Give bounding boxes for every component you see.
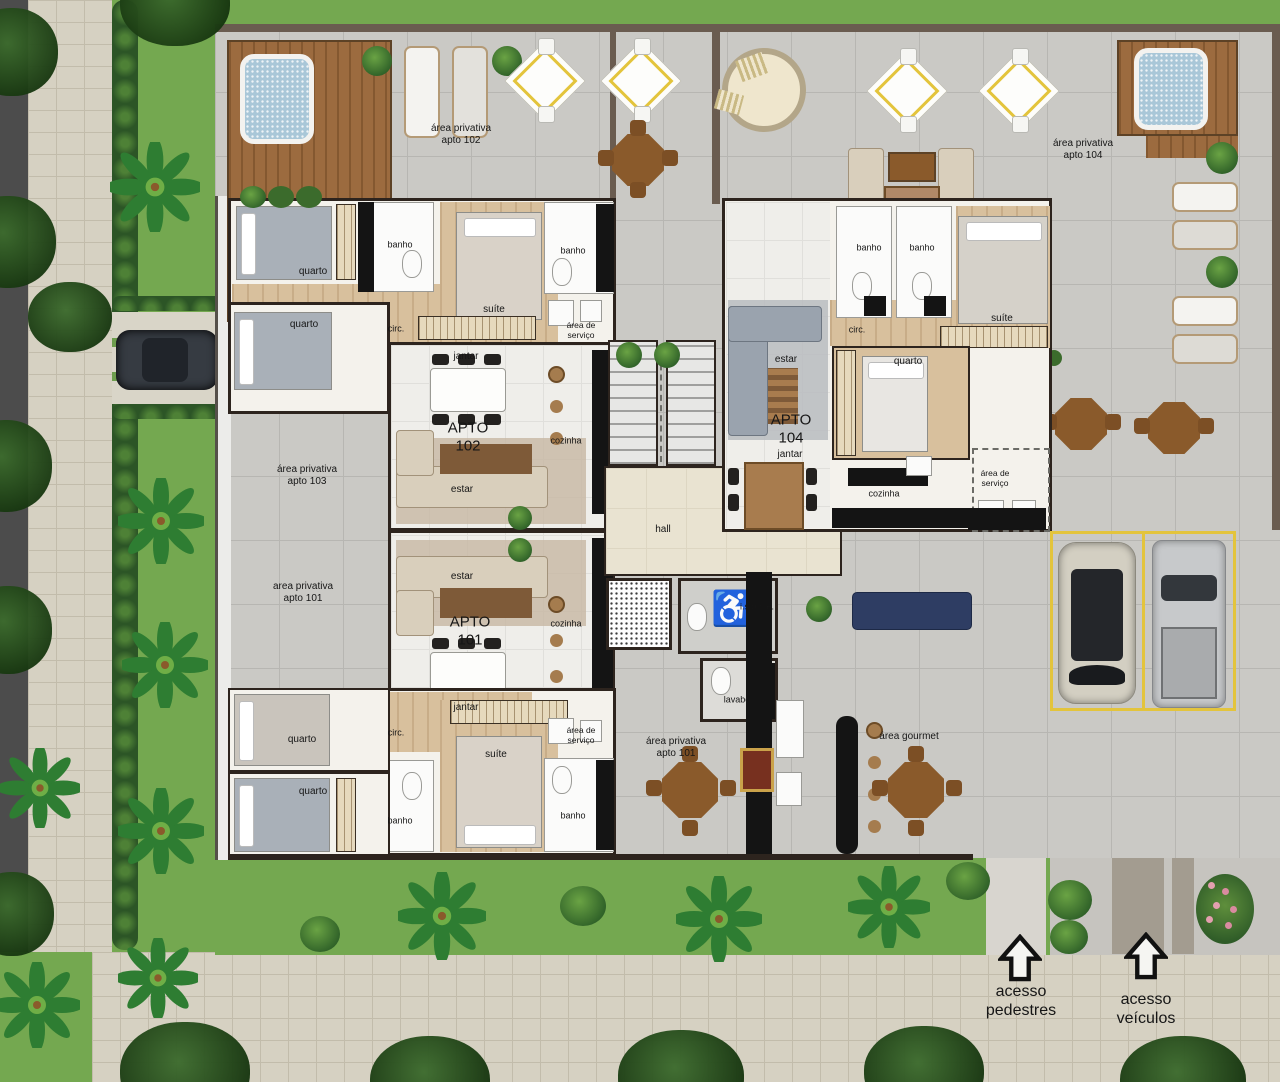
parking-counter — [968, 508, 1046, 530]
gourmet-counter — [746, 572, 772, 854]
garden-bush — [240, 186, 266, 208]
sun-lounger — [1172, 220, 1238, 250]
palm-tree — [118, 938, 198, 1018]
parked-pickup — [1152, 540, 1226, 708]
flower-artwork — [740, 748, 774, 792]
plan-label-area-gourmet: área gourmet — [879, 731, 938, 743]
plan-label-cozinha-101: cozinha — [550, 619, 581, 630]
bed-pillow — [464, 825, 537, 845]
wood-chair — [646, 780, 662, 796]
parked-suv — [1058, 542, 1136, 704]
plan-label-quarto-101b: quarto — [299, 786, 327, 798]
wood-chair — [1134, 418, 1150, 434]
wood-chair — [662, 150, 678, 166]
bath-counter — [924, 296, 946, 316]
closet — [336, 778, 356, 852]
wood-table — [1148, 402, 1200, 454]
terrace-chair — [1012, 48, 1029, 65]
closet — [418, 316, 536, 340]
wood-chair — [872, 780, 888, 796]
plan-label-circ-104: circ. — [849, 325, 866, 336]
bath-counter — [864, 296, 886, 316]
palm-tree — [848, 866, 930, 948]
closet — [836, 350, 856, 456]
tree-canopy — [28, 282, 112, 352]
plan-label-suite-102: suíte — [483, 304, 505, 316]
bed-pillow — [239, 785, 254, 847]
rose-flowers — [1208, 882, 1215, 889]
wall-between-units — [391, 528, 612, 533]
kitchen-stools-102 — [548, 366, 565, 383]
wood-chair — [946, 780, 962, 796]
garden-bush — [560, 886, 606, 926]
terrace-chair — [900, 116, 917, 133]
potted-plant — [1206, 142, 1238, 174]
palm-tree — [0, 962, 80, 1048]
bed-pillow — [464, 218, 537, 237]
plan-label-hall: hall — [655, 524, 671, 536]
bath-counter — [358, 202, 374, 292]
plan-label-apto-102: APTO 102 — [448, 419, 489, 454]
toilet — [552, 766, 572, 794]
garden-bush — [1050, 920, 1088, 954]
gourmet-sofa — [852, 592, 972, 630]
wood-table — [1055, 398, 1107, 450]
dining-chairs — [432, 354, 449, 365]
dining-table-102 — [430, 368, 506, 412]
wood-table — [662, 762, 718, 818]
plan-label-apto-101: APTO 101 — [450, 613, 491, 648]
plan-label-banho-101b: banho — [560, 811, 585, 822]
potted-plant — [508, 506, 532, 530]
elevator — [606, 578, 672, 650]
bath-counter — [596, 760, 614, 850]
plan-label-servico-104: área de serviço — [981, 468, 1010, 488]
plan-label-quarto-102a: quarto — [299, 266, 327, 278]
dining-chairs — [432, 638, 449, 649]
bed-pillow — [966, 222, 1042, 241]
garden-bush — [946, 862, 990, 900]
wood-chair — [630, 182, 646, 198]
plan-label-estar-104: estar — [775, 354, 797, 366]
sun-lounger — [1172, 334, 1238, 364]
wood-chair — [1105, 414, 1121, 430]
plan-label-ispne: i.s.p.n.e. — [740, 602, 774, 613]
sun-lounger — [1172, 296, 1238, 326]
wood-chair — [598, 150, 614, 166]
closet — [940, 326, 1048, 348]
kitchen-stools-101 — [548, 596, 565, 613]
bed-pillow — [241, 213, 256, 275]
plan-label-jantar-101: jantar — [453, 702, 478, 714]
plan-label-estar-102: estar — [451, 484, 473, 496]
terrace-coffee-table — [888, 152, 936, 182]
terrace-chair — [900, 48, 917, 65]
up-arrow-icon — [1124, 932, 1168, 980]
plan-label-suite-104: suíte — [991, 313, 1013, 325]
sofa-estar-101 — [396, 590, 434, 636]
plan-label-servico-102: área de serviço — [567, 320, 596, 340]
plan-label-circ-102: circ. — [388, 324, 405, 335]
plan-label-acesso-pedestres: acesso pedestres — [986, 983, 1056, 1021]
pickup-cab-glass — [1161, 575, 1217, 601]
sofa-estar-104 — [728, 306, 822, 342]
bed-quarto-104 — [862, 356, 928, 452]
plan-label-estar-101: estar — [451, 571, 473, 583]
spa-apto-104 — [1134, 48, 1208, 130]
potted-plant — [362, 46, 392, 76]
wood-chair — [1198, 418, 1214, 434]
palm-tree — [110, 142, 200, 232]
plan-label-banho-104a: banho — [856, 243, 881, 254]
wood-chair — [720, 780, 736, 796]
laundry-tank — [580, 300, 602, 322]
potted-plant — [654, 342, 680, 368]
plan-label-banho-104b: banho — [909, 243, 934, 254]
closet — [336, 204, 356, 280]
car-windshield — [142, 338, 188, 382]
wall-right — [1272, 24, 1280, 530]
palm-tree — [118, 478, 204, 564]
wood-chair — [908, 746, 924, 762]
wall-top — [215, 24, 1280, 32]
bed-pillow — [239, 701, 254, 762]
toilet — [402, 250, 422, 278]
plan-label-area-apto-101-south: área privativa apto 101 — [646, 736, 706, 760]
dining-table-104 — [744, 462, 804, 530]
terrace-chair — [1012, 116, 1029, 133]
toilet — [687, 603, 707, 631]
plan-label-area-apto-103: área privativa apto 103 — [277, 464, 337, 488]
plan-label-area-apto-101-west: area privativa apto 101 — [273, 581, 333, 605]
suv-windshield — [1069, 665, 1125, 685]
hedge-below-driveway — [112, 404, 222, 419]
plan-label-quarto-101a: quarto — [288, 734, 316, 746]
palm-tree — [122, 622, 208, 708]
gourmet-sink — [776, 772, 802, 806]
palm-tree — [0, 748, 80, 828]
suv-roof-glass — [1071, 569, 1123, 661]
plan-label-jantar-102: jantar — [453, 351, 478, 363]
palm-tree — [676, 876, 762, 962]
plan-label-banho-102b: banho — [560, 246, 585, 257]
potted-plant — [616, 342, 642, 368]
bed-suite-104 — [958, 216, 1048, 324]
floor-plan-scene: ♿ — [0, 0, 1280, 1082]
rose-bush — [1196, 874, 1254, 944]
path-vehicles-2 — [1172, 858, 1194, 954]
plan-label-cozinha-104: cozinha — [868, 489, 899, 500]
wood-chair — [682, 820, 698, 836]
kitchen-counter-104 — [832, 508, 970, 528]
plan-label-area-apto-104: área privativa apto 104 — [1053, 138, 1113, 162]
plan-label-servico-101: área de serviço — [567, 725, 596, 745]
plan-label-cozinha-102: cozinha — [550, 436, 581, 447]
palm-tree — [398, 872, 486, 960]
wall-terrace-divider-2 — [712, 28, 720, 204]
pickup-bed — [1161, 627, 1217, 699]
bath-counter — [596, 204, 614, 292]
spa-apto-102 — [240, 54, 314, 144]
gourmet-bar — [836, 716, 858, 854]
garden-bush — [1048, 880, 1092, 920]
toilet — [552, 258, 572, 286]
bed-quarto-101a — [234, 694, 330, 766]
garden-bush — [300, 916, 340, 952]
toilet — [711, 667, 731, 695]
terrace-chair — [538, 106, 555, 123]
plan-label-banho-102a: banho — [387, 240, 412, 251]
hedge-above-driveway — [112, 296, 222, 311]
plan-label-acesso-veiculos: acesso veículos — [1117, 991, 1176, 1029]
parked-car-street — [116, 330, 218, 390]
wall-terrace-divider-1 — [610, 28, 616, 202]
dining-chairs — [728, 468, 739, 485]
plan-label-jantar-104: jantar — [777, 449, 802, 461]
gourmet-fridge — [776, 700, 804, 758]
sofa-estar-102 — [396, 430, 434, 476]
terrace-chair — [634, 38, 651, 55]
wood-table — [888, 762, 944, 818]
palm-tree — [118, 788, 204, 874]
potted-plant — [508, 538, 532, 562]
wood-chair — [908, 820, 924, 836]
stall-divider — [1142, 534, 1145, 708]
sun-lounger — [1172, 182, 1238, 212]
plan-label-quarto-104: quarto — [894, 356, 922, 368]
plan-label-circ-101: circ. — [388, 728, 405, 739]
up-arrow-icon — [998, 934, 1042, 982]
plan-label-quarto-103: quarto — [290, 319, 318, 331]
wood-chair — [630, 120, 646, 136]
plan-label-suite-101: suíte — [485, 749, 507, 761]
kitchen-appliance — [906, 456, 932, 476]
plan-label-apto-104: APTO 104 — [771, 411, 812, 446]
plan-label-banho-101a: banho — [387, 816, 412, 827]
toilet — [402, 772, 422, 800]
potted-plant — [1206, 256, 1238, 288]
terrace-chair — [538, 38, 555, 55]
bed-pillow — [239, 319, 254, 385]
plan-label-area-apto-102: área privativa apto 102 — [431, 123, 491, 147]
plan-label-lavabo: lavabo — [724, 695, 751, 706]
potted-plant — [806, 596, 832, 622]
